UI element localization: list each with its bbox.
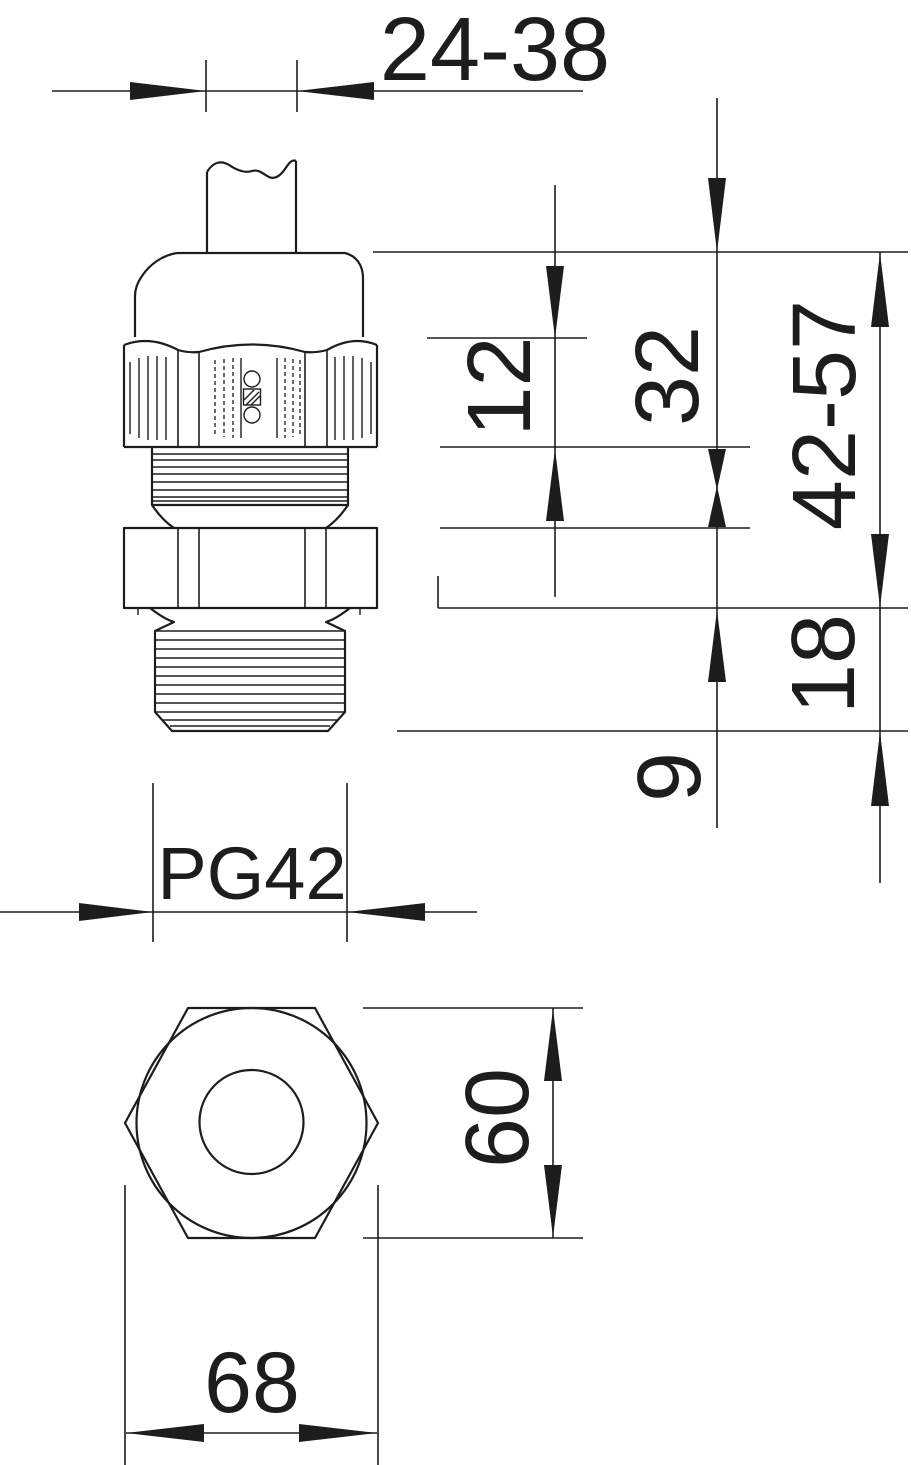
groove-lines <box>152 454 348 501</box>
arrowhead-hourglass-bottom <box>708 486 726 527</box>
arrowhead-left-pointing <box>297 82 374 100</box>
arrowhead-right-pointing <box>130 82 206 100</box>
flange-facet-lines <box>178 528 326 608</box>
neck-upper <box>152 505 348 528</box>
dim-label-18: 18 <box>774 614 874 714</box>
arrowhead-down <box>871 534 889 607</box>
dim-nut-height: 12 <box>450 185 564 597</box>
knurl-lines-left <box>130 356 166 440</box>
cap-outline <box>135 253 363 337</box>
obo-logo <box>244 371 261 423</box>
facet-dashed-lines-right <box>285 358 300 438</box>
dim-thread-size: PG42 <box>0 783 477 942</box>
cable-hole-circle <box>200 1070 304 1174</box>
cable-gland-drawing: 24-38 12 32 42-57 18 9 <box>0 0 911 1465</box>
dim-label-60: 60 <box>448 1068 548 1168</box>
groove-section <box>152 447 348 528</box>
dim-label-68: 68 <box>204 1335 300 1431</box>
dim-lower-offset: 9 <box>620 752 720 802</box>
thread-lines <box>155 640 345 726</box>
arrowhead-left-pointing <box>347 903 425 921</box>
arrowhead-left-pointing <box>126 1424 204 1442</box>
dim-label-9: 9 <box>620 752 720 802</box>
dim-label-12: 12 <box>450 336 550 436</box>
dim-label-42-57: 42-57 <box>775 300 875 530</box>
dim-upper-height: 32 <box>618 98 726 828</box>
arrowhead-right-pointing <box>79 903 153 921</box>
dim-across-flats: 60 <box>363 1008 583 1238</box>
hexagon-outline <box>125 1008 378 1238</box>
bottom-view <box>125 1008 378 1238</box>
ref-line-608 <box>438 576 908 608</box>
obo-logo-o-top <box>244 371 260 387</box>
thread-section <box>150 608 350 731</box>
dim-label-pg42: PG42 <box>157 832 346 915</box>
cable-break-line <box>207 160 296 177</box>
knurl-lines-right <box>335 356 371 440</box>
arrowhead-hourglass-top <box>708 449 726 490</box>
hex-nut <box>124 341 377 447</box>
extension-lines <box>206 60 297 112</box>
dim-across-corners: 68 <box>125 1185 378 1465</box>
hex-nut-body <box>124 345 377 447</box>
cable-stub <box>207 160 296 252</box>
hex-flange <box>124 528 377 615</box>
body-circle <box>137 1008 367 1238</box>
facet-dashed-lines-left <box>215 358 233 438</box>
arrowhead-up <box>708 610 726 682</box>
obo-logo-o-bottom <box>244 407 260 423</box>
arrowhead-right-pointing <box>299 1424 377 1442</box>
arrowhead-down <box>708 178 726 252</box>
technical-drawing-page: 24-38 12 32 42-57 18 9 <box>0 0 911 1465</box>
hex-nut-top-edge <box>124 341 377 352</box>
arrowhead-up <box>546 449 564 521</box>
side-view <box>124 160 377 731</box>
arrowhead-down <box>546 266 564 338</box>
cable-sides <box>207 161 296 252</box>
obo-logo-b-hatch <box>244 390 260 405</box>
dim-label-24-38: 24-38 <box>380 0 610 100</box>
dim-clamping-range: 24-38 <box>52 0 610 112</box>
arrowhead-down <box>544 1165 562 1237</box>
dim-overall-height: 42-57 18 <box>774 252 889 883</box>
dim-label-32: 32 <box>618 326 718 426</box>
flange-outline <box>124 528 377 608</box>
arrowhead-up-lower <box>871 732 889 806</box>
